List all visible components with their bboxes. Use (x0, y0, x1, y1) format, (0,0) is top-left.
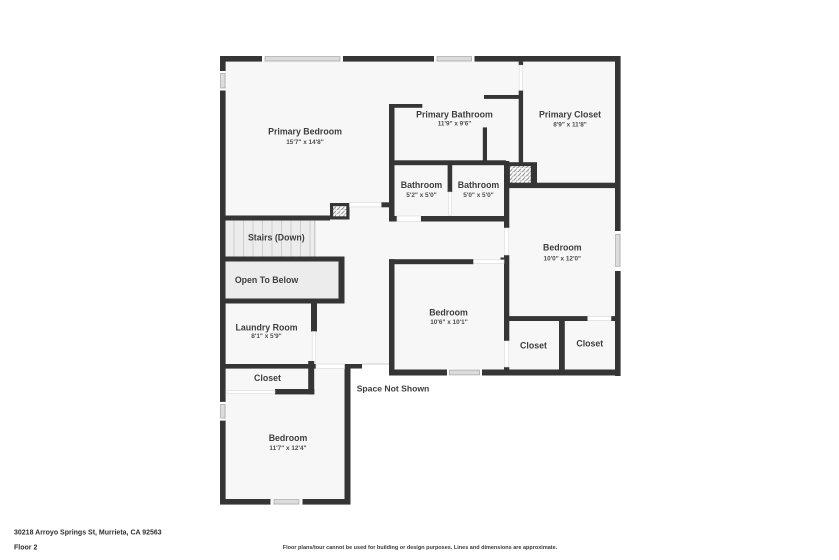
svg-text:Bathroom: Bathroom (458, 180, 500, 190)
svg-text:Floor 2: Floor 2 (14, 544, 37, 551)
svg-text:11'7" x 12'4": 11'7" x 12'4" (269, 445, 306, 452)
svg-text:5'2" x 5'0": 5'2" x 5'0" (406, 192, 436, 199)
svg-text:30218 Arroyo Springs St, Murri: 30218 Arroyo Springs St, Murrieta, CA 92… (14, 530, 162, 537)
svg-text:Primary Bedroom: Primary Bedroom (268, 126, 342, 136)
svg-text:Bedroom: Bedroom (429, 308, 468, 318)
svg-text:Space Not Shown: Space Not Shown (357, 383, 430, 393)
svg-text:Bedroom: Bedroom (543, 243, 582, 253)
svg-text:10'0" x 12'0": 10'0" x 12'0" (544, 255, 582, 262)
svg-text:Stairs (Down): Stairs (Down) (248, 232, 305, 242)
svg-text:10'6" x 10'1": 10'6" x 10'1" (430, 319, 468, 326)
svg-text:Open To Below: Open To Below (235, 275, 299, 285)
svg-text:8'1" x 5'9": 8'1" x 5'9" (251, 333, 281, 340)
svg-text:Closet: Closet (576, 338, 603, 348)
svg-text:Bedroom: Bedroom (269, 433, 308, 443)
svg-text:Bathroom: Bathroom (401, 180, 443, 190)
svg-text:Closet: Closet (254, 373, 281, 383)
svg-text:15'7" x 14'8": 15'7" x 14'8" (286, 139, 324, 146)
svg-text:Floor plans/tour cannot be use: Floor plans/tour cannot be used for buil… (283, 545, 558, 551)
svg-text:11'9" x 9'6": 11'9" x 9'6" (438, 121, 472, 128)
svg-text:8'9" x 11'8": 8'9" x 11'8" (553, 121, 587, 128)
svg-text:Primary Closet: Primary Closet (539, 110, 601, 120)
svg-text:5'0" x 5'0": 5'0" x 5'0" (463, 192, 493, 199)
svg-text:Primary Bathroom: Primary Bathroom (416, 109, 493, 119)
svg-text:Closet: Closet (520, 340, 547, 350)
svg-text:Laundry Room: Laundry Room (235, 323, 297, 333)
